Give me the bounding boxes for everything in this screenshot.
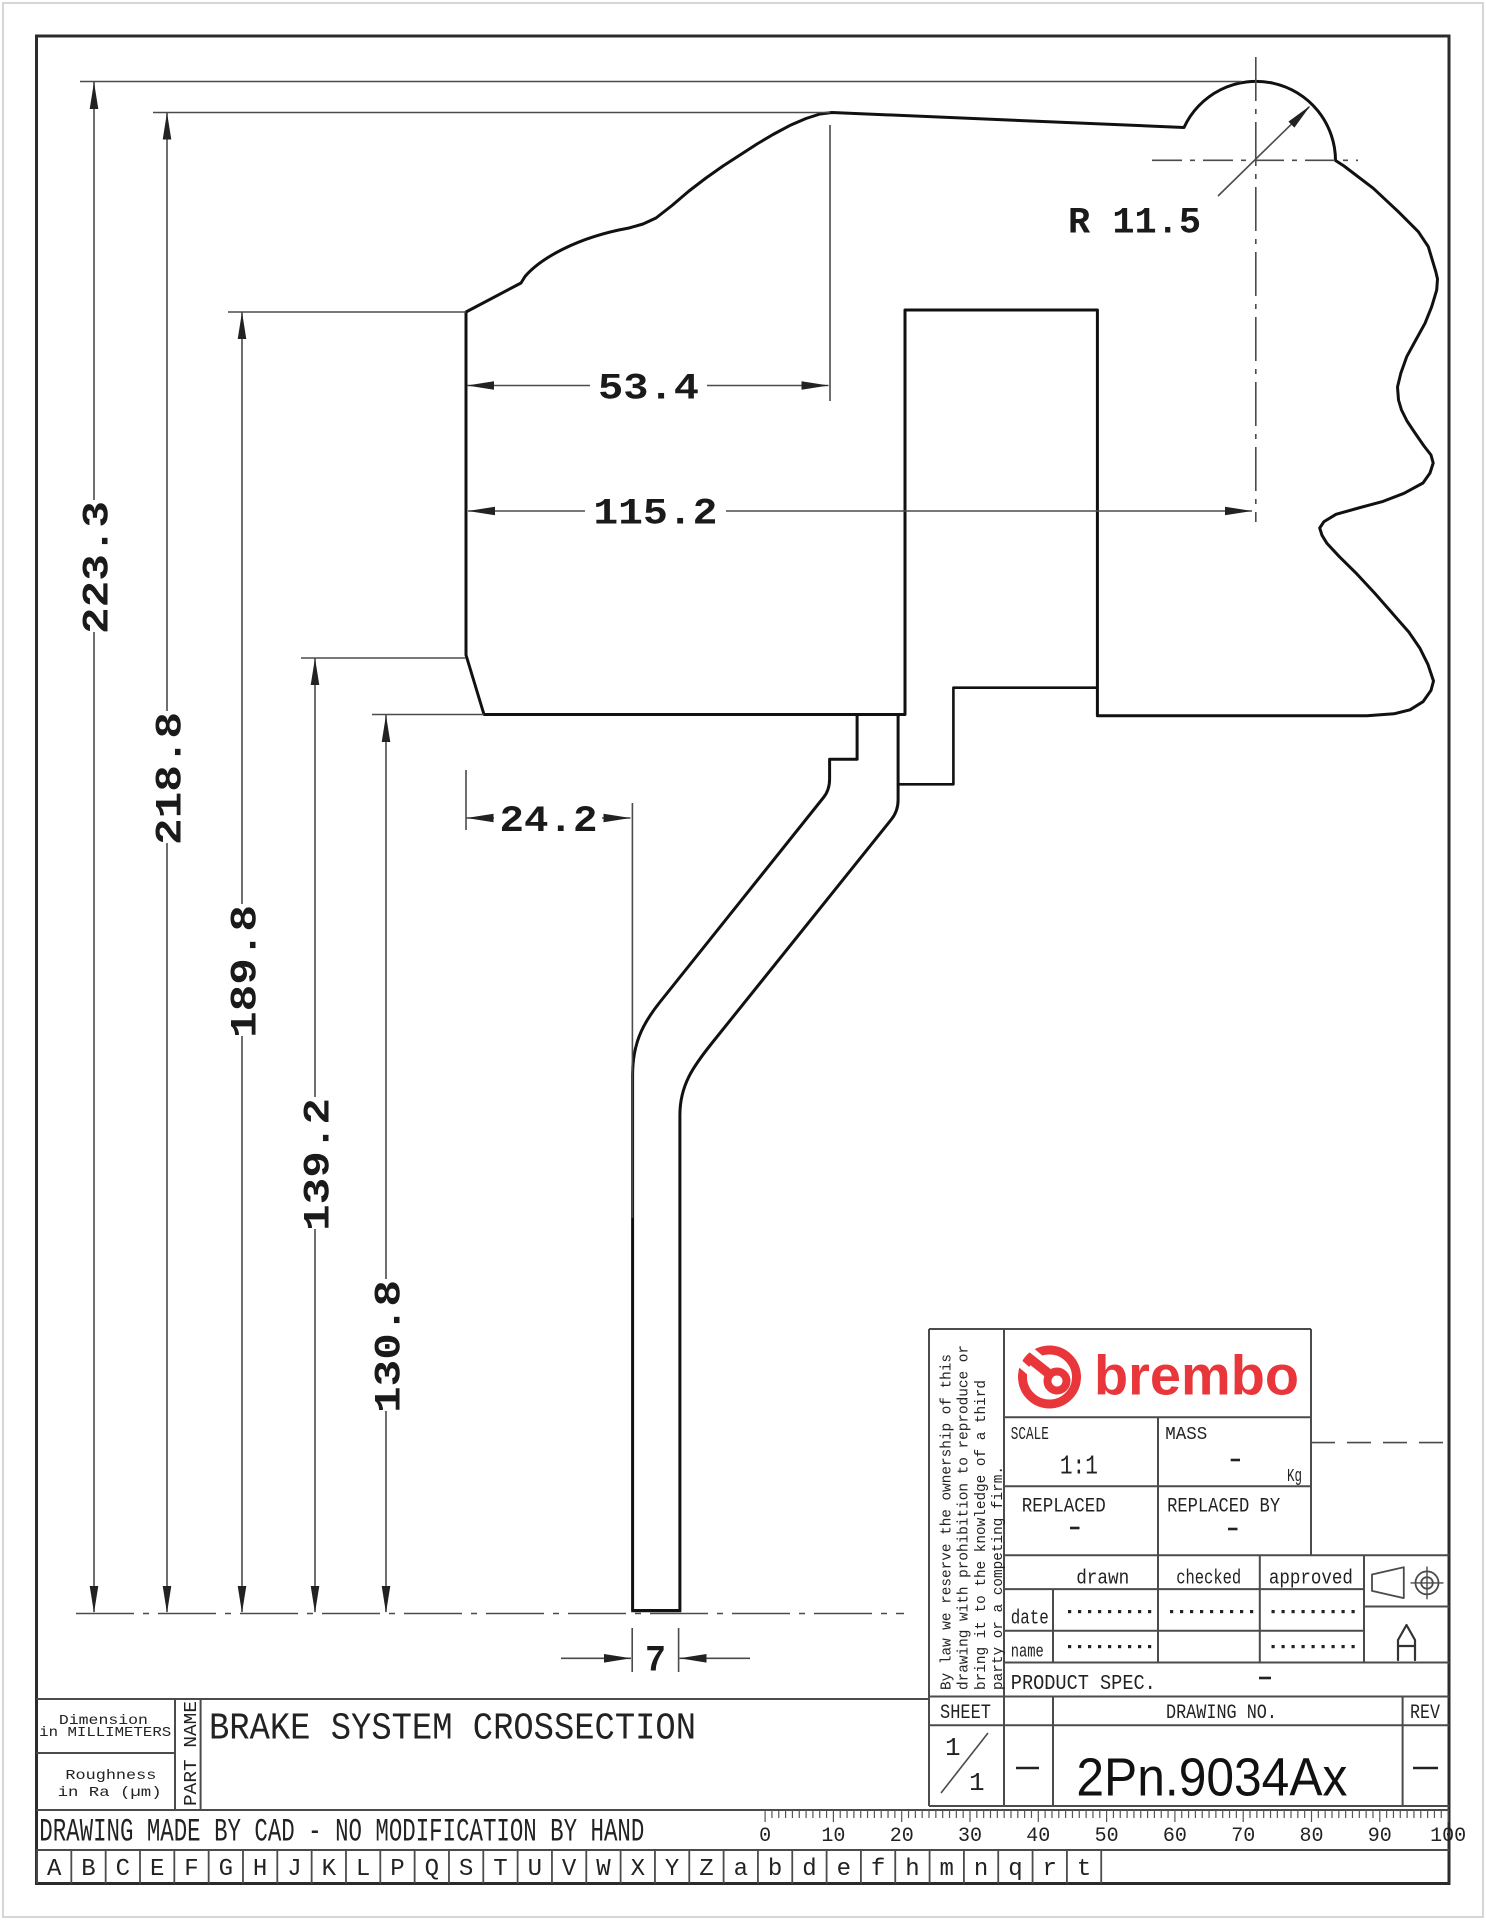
svg-text:80: 80: [1299, 1825, 1323, 1848]
svg-text:BRAKE SYSTEM CROSSECTION: BRAKE SYSTEM CROSSECTION: [209, 1708, 696, 1751]
svg-text:U: U: [528, 1856, 542, 1883]
svg-text:L: L: [356, 1856, 370, 1883]
svg-text:REPLACED BY: REPLACED BY: [1167, 1496, 1280, 1519]
svg-text:90: 90: [1368, 1825, 1392, 1848]
svg-text:V: V: [562, 1856, 577, 1883]
svg-text:in MILLIMETERS: in MILLIMETERS: [39, 1725, 171, 1741]
svg-text:bring it to the knowledge of a: bring it to the knowledge of a third: [973, 1380, 990, 1690]
svg-text:50: 50: [1095, 1825, 1119, 1848]
svg-text:2Pn.9034Ax: 2Pn.9034Ax: [1076, 1748, 1347, 1808]
svg-text:10: 10: [821, 1825, 845, 1848]
svg-text:60: 60: [1163, 1825, 1187, 1848]
svg-text:B: B: [81, 1856, 95, 1883]
svg-text:J: J: [287, 1856, 301, 1883]
svg-text:date: date: [1011, 1608, 1049, 1631]
svg-text:100: 100: [1430, 1825, 1466, 1848]
svg-text:b: b: [768, 1856, 782, 1883]
svg-text:7: 7: [645, 1641, 666, 1683]
svg-text:20: 20: [890, 1825, 914, 1848]
svg-text:24.2: 24.2: [500, 801, 598, 843]
svg-text:Q: Q: [425, 1856, 439, 1883]
svg-text:in Ra (µm): in Ra (µm): [58, 1785, 162, 1801]
svg-text:1: 1: [969, 1768, 985, 1798]
svg-text:SCALE: SCALE: [1011, 1425, 1049, 1445]
svg-text:MASS: MASS: [1165, 1425, 1207, 1445]
svg-text:t: t: [1077, 1856, 1091, 1883]
svg-text:H: H: [253, 1856, 267, 1883]
svg-text:K: K: [322, 1856, 337, 1883]
svg-text:0: 0: [759, 1825, 771, 1848]
svg-text:P: P: [390, 1856, 404, 1883]
svg-text:PRODUCT SPEC.: PRODUCT SPEC.: [1011, 1673, 1156, 1696]
svg-text:d: d: [802, 1856, 816, 1883]
svg-text:70: 70: [1231, 1825, 1255, 1848]
svg-text:a: a: [734, 1856, 748, 1883]
svg-text:h: h: [905, 1856, 919, 1883]
svg-text:m: m: [939, 1856, 953, 1883]
svg-text:30: 30: [958, 1825, 982, 1848]
svg-text:party or a competing firm.: party or a competing firm.: [990, 1466, 1007, 1690]
svg-text:e: e: [837, 1856, 851, 1883]
svg-text:REV: REV: [1410, 1702, 1440, 1725]
svg-text:PART NAME: PART NAME: [182, 1701, 202, 1806]
svg-text:brembo: brembo: [1094, 1344, 1299, 1407]
svg-text:S: S: [459, 1856, 473, 1883]
svg-text:approved: approved: [1269, 1568, 1353, 1591]
svg-text:name: name: [1011, 1642, 1044, 1662]
svg-text:G: G: [219, 1856, 233, 1883]
svg-text:1: 1: [945, 1733, 961, 1763]
svg-text:drawn: drawn: [1076, 1568, 1129, 1591]
svg-text:E: E: [150, 1856, 164, 1883]
svg-text:Y: Y: [665, 1856, 679, 1883]
svg-text:223.3: 223.3: [78, 501, 120, 634]
svg-text:Z: Z: [699, 1856, 713, 1883]
svg-text:130.8: 130.8: [370, 1280, 412, 1413]
svg-text:F: F: [184, 1856, 198, 1883]
svg-text:X: X: [631, 1856, 645, 1883]
svg-text:SHEET: SHEET: [940, 1702, 991, 1725]
svg-text:139.2: 139.2: [299, 1098, 341, 1231]
svg-text:Kg: Kg: [1287, 1467, 1302, 1487]
svg-text:r: r: [1042, 1856, 1056, 1883]
svg-text:189.8: 189.8: [226, 905, 268, 1038]
svg-text:REPLACED: REPLACED: [1022, 1496, 1106, 1519]
svg-text:1:1: 1:1: [1060, 1453, 1098, 1483]
svg-text:q: q: [1008, 1856, 1022, 1883]
svg-text:218.8: 218.8: [151, 712, 193, 845]
svg-text:DRAWING MADE BY CAD - NO MODIF: DRAWING MADE BY CAD - NO MODIFICATION BY…: [39, 1814, 644, 1851]
svg-text:R 11.5: R 11.5: [1068, 203, 1201, 245]
svg-text:DRAWING NO.: DRAWING NO.: [1166, 1702, 1277, 1725]
svg-text:f: f: [871, 1856, 885, 1883]
svg-text:n: n: [974, 1856, 988, 1883]
svg-text:115.2: 115.2: [593, 494, 717, 536]
svg-text:drawing with prohibition to re: drawing with prohibition to reproduce or: [956, 1345, 973, 1690]
svg-text:checked: checked: [1176, 1568, 1241, 1591]
svg-text:40: 40: [1026, 1825, 1050, 1848]
svg-text:Roughness: Roughness: [65, 1768, 156, 1784]
svg-text:W: W: [596, 1856, 611, 1883]
svg-text:A: A: [47, 1856, 62, 1883]
svg-text:By law we reserve the ownershi: By law we reserve the ownership of this: [939, 1354, 956, 1690]
svg-text:C: C: [116, 1856, 130, 1883]
svg-text:T: T: [493, 1856, 507, 1883]
svg-text:53.4: 53.4: [598, 369, 699, 411]
